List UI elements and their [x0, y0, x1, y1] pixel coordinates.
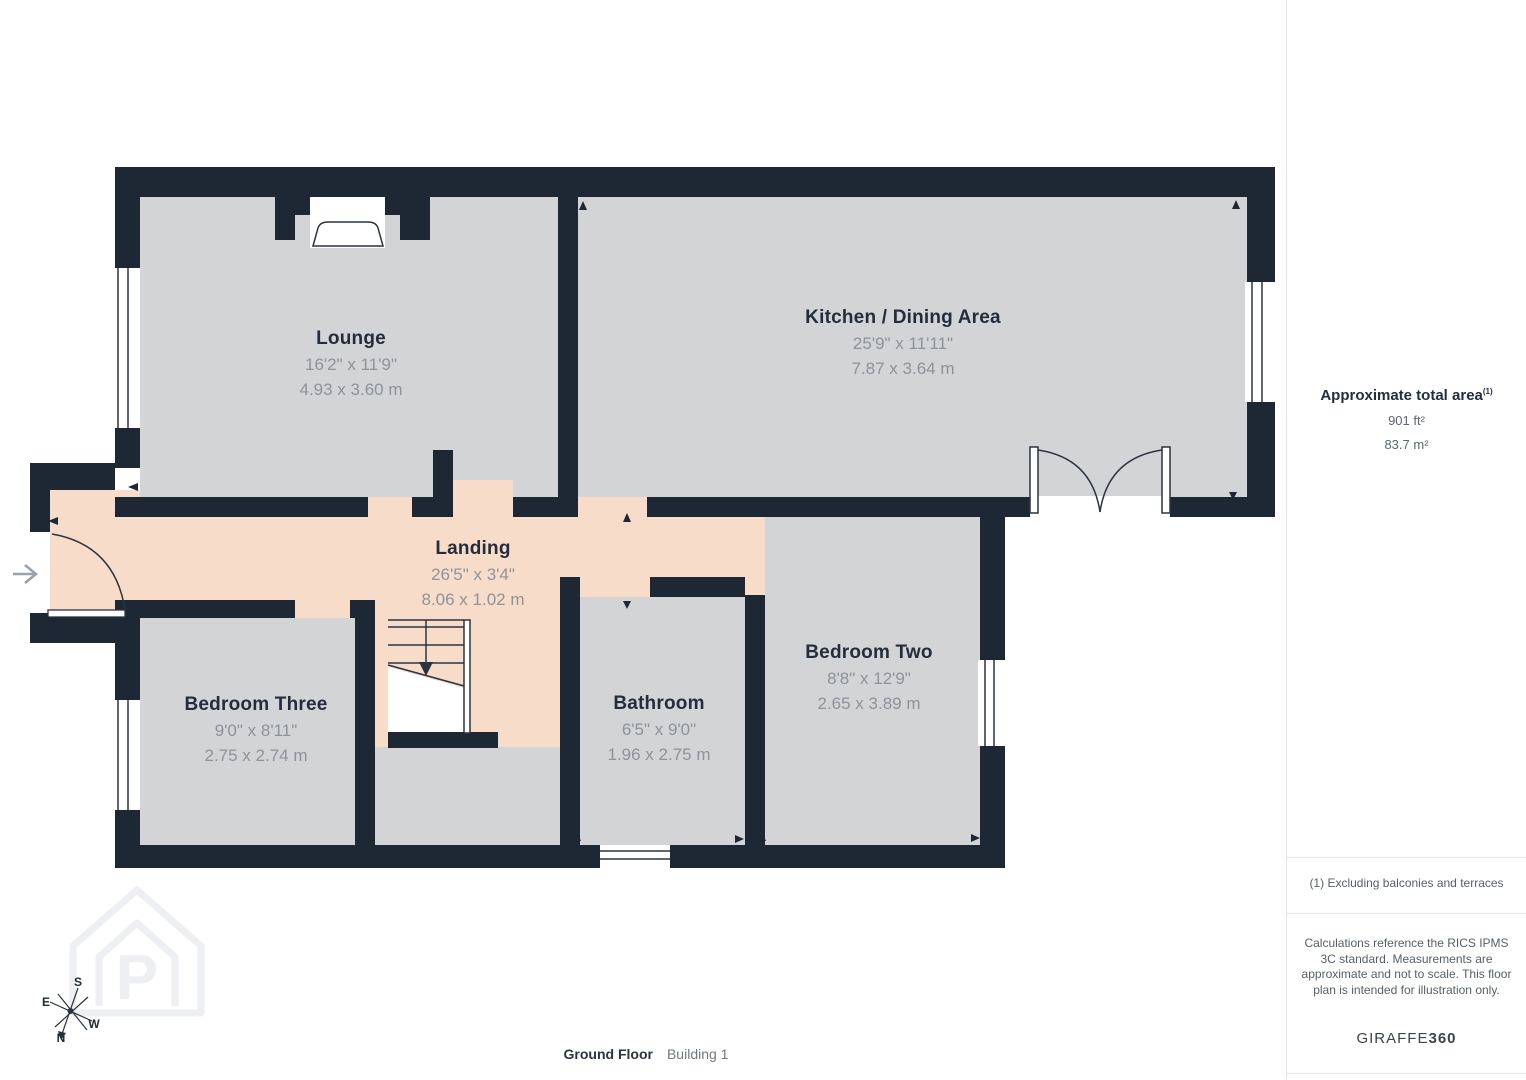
floor-caption: Ground Floor Building 1	[564, 1046, 729, 1062]
total-area-title: Approximate total area(1)	[1287, 387, 1526, 404]
room-label-kitchen: Kitchen / Dining Area 25'9" x 11'11" 7.8…	[805, 304, 1001, 381]
room-name: Bathroom	[607, 690, 710, 717]
room-name: Kitchen / Dining Area	[805, 304, 1001, 331]
window-kitchen	[1245, 282, 1275, 402]
area-footnote: (1) Excluding balconies and terraces	[1287, 876, 1526, 890]
brand-suffix: 360	[1428, 1030, 1456, 1047]
compass-north-label: N	[57, 1031, 66, 1045]
room-label-bathroom: Bathroom 6'5" x 9'0" 1.96 x 2.75 m	[607, 690, 710, 767]
watermark-letter: P	[116, 941, 159, 1013]
room-dim-imperial: 9'0" x 8'11"	[184, 718, 327, 743]
info-sidebar: Approximate total area(1) 901 ft² 83.7 m…	[1286, 0, 1526, 1080]
window-lounge	[113, 268, 140, 428]
room-dim-imperial: 25'9" x 11'11"	[805, 331, 1001, 356]
floor-understairs	[375, 747, 560, 845]
total-area-imperial: 901 ft²	[1287, 413, 1526, 428]
room-dim-metric: 1.96 x 2.75 m	[607, 742, 710, 767]
sidebar-divider	[1287, 1073, 1526, 1074]
window-bedroom-two	[978, 660, 1007, 746]
window-bedroom-three	[113, 700, 140, 810]
room-label-lounge: Lounge 16'2" x 11'9" 4.93 x 3.60 m	[299, 325, 402, 402]
compass-south-label: S	[74, 975, 82, 989]
room-dim-imperial: 6'5" x 9'0"	[607, 717, 710, 742]
total-area-metric: 83.7 m²	[1287, 437, 1526, 452]
room-label-bedroom-three: Bedroom Three 9'0" x 8'11" 2.75 x 2.74 m	[184, 691, 327, 768]
room-label-bedroom-two: Bedroom Two 8'8" x 12'9" 2.65 x 3.89 m	[805, 639, 932, 716]
room-dim-metric: 2.75 x 2.74 m	[184, 743, 327, 768]
window-bathroom	[600, 845, 670, 868]
room-name: Lounge	[299, 325, 402, 352]
floorplan-drawing: P	[0, 0, 1286, 1080]
room-name: Bedroom Two	[805, 639, 932, 666]
floorplan-canvas: P	[0, 0, 1286, 1080]
room-name: Bedroom Three	[184, 691, 327, 718]
total-area-block: Approximate total area(1) 901 ft² 83.7 m…	[1287, 387, 1526, 452]
brand-logo: GIRAFFE360	[1287, 1030, 1526, 1047]
room-dim-metric: 4.93 x 3.60 m	[299, 377, 402, 402]
room-dim-metric: 8.06 x 1.02 m	[421, 587, 524, 612]
sidebar-divider	[1287, 857, 1526, 858]
room-dim-imperial: 26'5" x 3'4"	[421, 562, 524, 587]
brand-name: GIRAFFE	[1356, 1030, 1428, 1047]
room-name: Landing	[421, 535, 524, 562]
room-dim-imperial: 8'8" x 12'9"	[805, 666, 932, 691]
sidebar-divider	[1287, 913, 1526, 914]
floorplan-page: { "plan": { "rooms": [ {"name": "Lounge"…	[0, 0, 1526, 1080]
compass-west-label: W	[88, 1017, 100, 1031]
floor-caption-title: Ground Floor	[564, 1046, 653, 1062]
disclaimer-text: Calculations reference the RICS IPMS 3C …	[1301, 936, 1512, 998]
watermark-logo: P	[73, 890, 201, 1013]
compass-east-label: E	[42, 995, 50, 1009]
room-dim-imperial: 16'2" x 11'9"	[299, 352, 402, 377]
room-dim-metric: 7.87 x 3.64 m	[805, 356, 1001, 381]
footnote-marker: (1)	[1483, 387, 1493, 396]
entrance-arrow	[13, 565, 36, 583]
room-label-landing: Landing 26'5" x 3'4" 8.06 x 1.02 m	[421, 535, 524, 612]
floor-caption-building: Building 1	[667, 1046, 729, 1062]
room-dim-metric: 2.65 x 3.89 m	[805, 691, 932, 716]
